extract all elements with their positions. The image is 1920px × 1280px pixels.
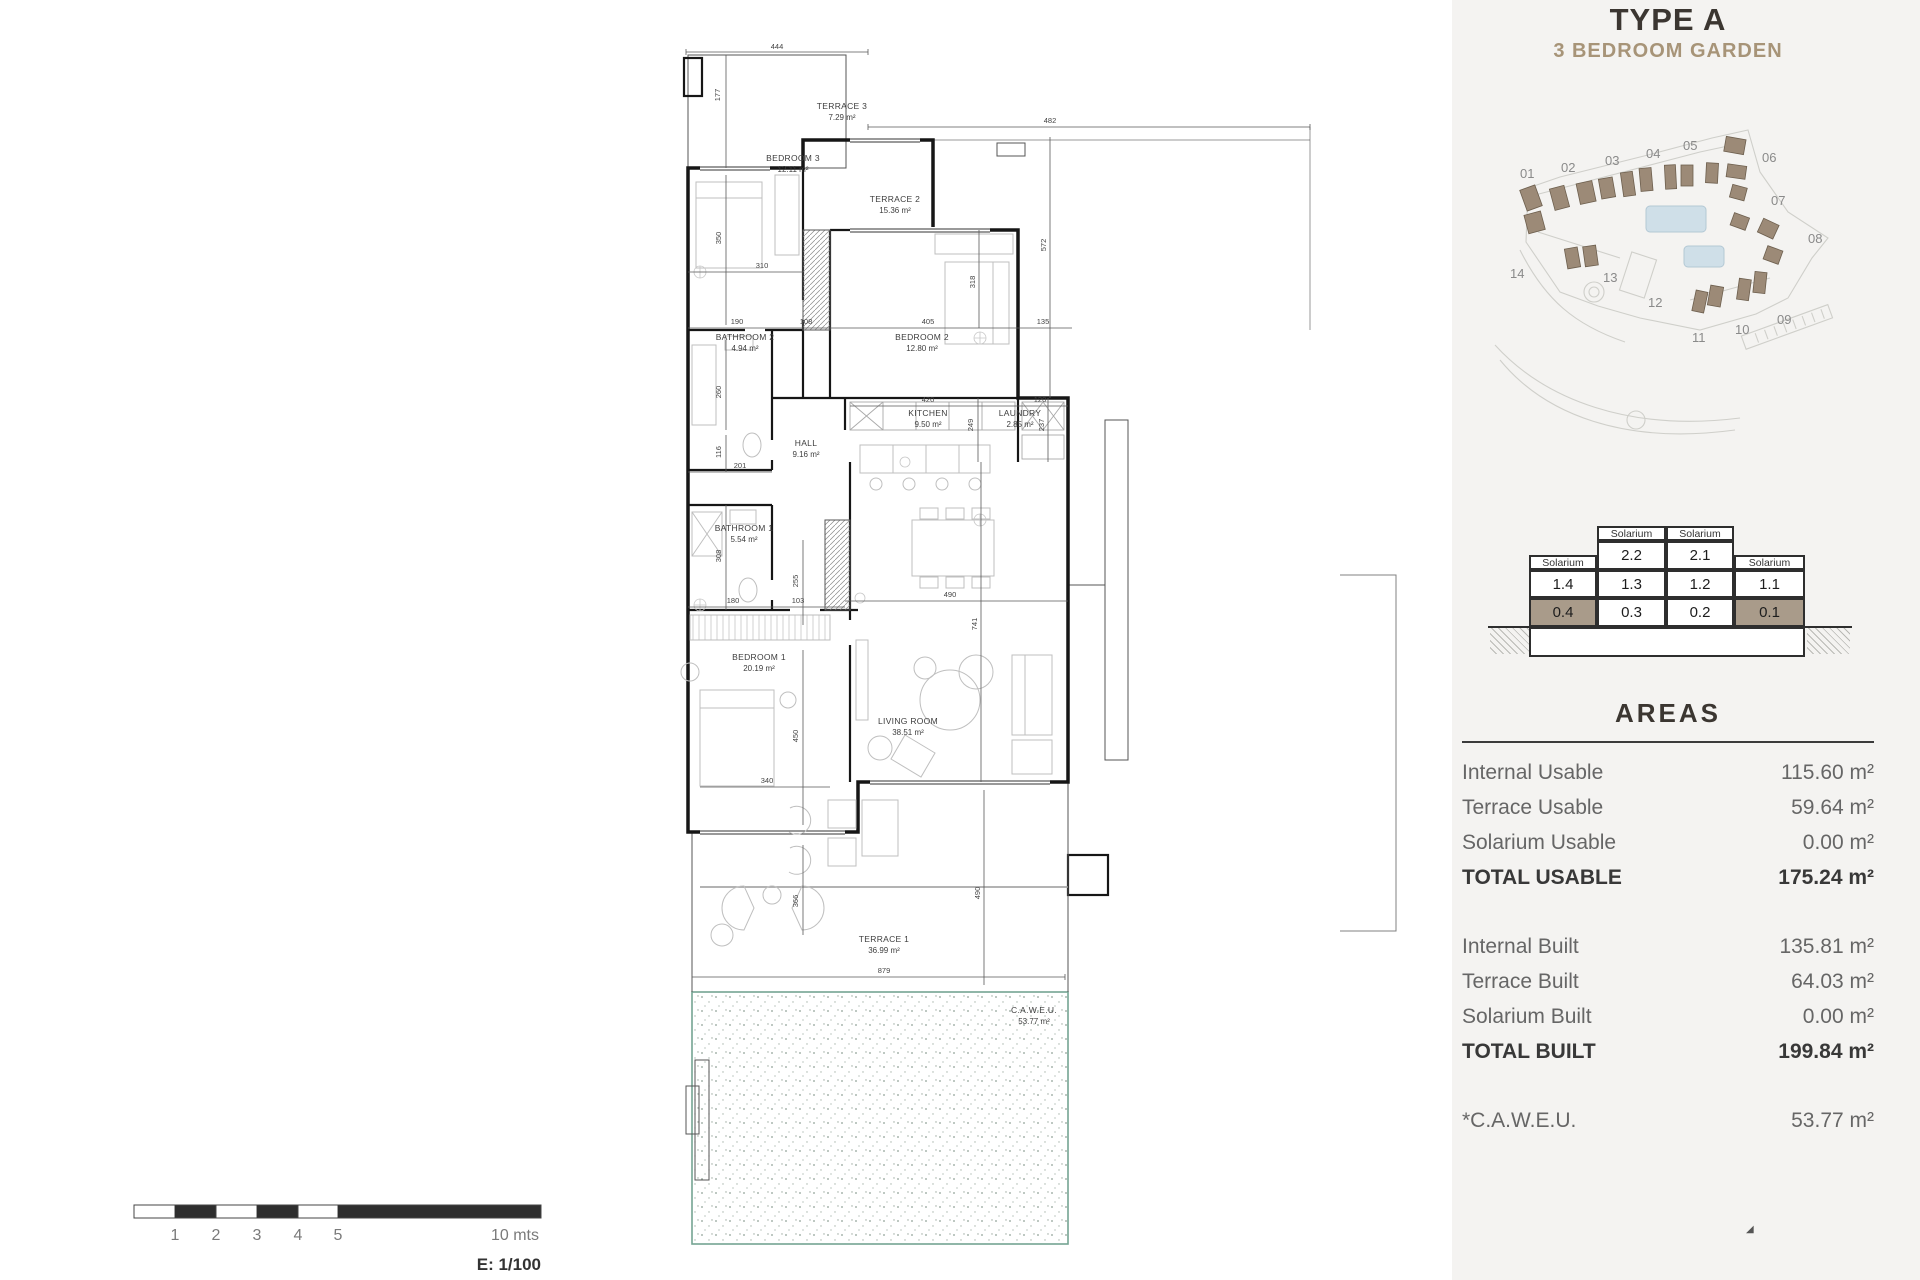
dim-350: 350 [714, 232, 723, 245]
scale-bar: 1 2 3 4 5 10 mts E: 1/100 [120, 1195, 560, 1280]
matrix-solarium-label: Solarium [1734, 555, 1805, 570]
matrix-unit-0-1-highlighted: 0.1 [1734, 598, 1805, 627]
site-number-01: 01 [1520, 166, 1534, 181]
garden-area [692, 992, 1068, 1244]
scale-bar-graphic [134, 1205, 541, 1218]
area-label: *C.A.W.E.U. [1462, 1109, 1576, 1133]
right-side-elements [1068, 420, 1396, 931]
site-number-11: 11 [1692, 330, 1706, 345]
areas-row: Internal Usable 115.60 m² [1462, 761, 1874, 785]
area-label: Terrace Usable [1462, 796, 1603, 820]
site-number-06: 06 [1762, 150, 1776, 165]
dim-255: 255 [791, 575, 800, 588]
corner-mark: ◢ [1746, 1224, 1754, 1235]
floorplan-page: 444 177 482 572 310 350 190 108 405 135 … [0, 0, 1920, 1280]
dim-572: 572 [1039, 239, 1048, 252]
area-label: Terrace Built [1462, 970, 1579, 994]
scale-end-label: 10 mts [491, 1227, 539, 1244]
site-number-09: 09 [1777, 312, 1791, 327]
site-number-14: 14 [1510, 266, 1524, 281]
room-living-name: LIVING ROOM [878, 716, 938, 726]
site-number-13: 13 [1603, 270, 1617, 285]
room-bathroom2-area: 4.94 m² [731, 344, 758, 353]
room-hall-name: HALL [795, 438, 817, 448]
scale-tick-2: 2 [212, 1227, 221, 1244]
areas-row-total-usable: TOTAL USABLE 175.24 m² [1462, 866, 1874, 890]
dim-741: 741 [970, 618, 979, 631]
room-bedroom2-name: BEDROOM 2 [895, 332, 949, 342]
areas-row-total-built: TOTAL BUILT 199.84 m² [1462, 1040, 1874, 1064]
areas-row: Terrace Usable 59.64 m² [1462, 796, 1874, 820]
dim-177: 177 [713, 89, 722, 102]
room-bedroom3-name: BEDROOM 3 [766, 153, 820, 163]
dimension-labels: 444 177 482 572 310 350 190 108 405 135 … [713, 42, 1056, 975]
areas-row: Terrace Built 64.03 m² [1462, 970, 1874, 994]
room-caweu-area: 53.77 m² [1018, 1017, 1050, 1026]
dim-135: 135 [1037, 317, 1050, 326]
dim-190: 190 [731, 317, 744, 326]
matrix-unit-1-3: 1.3 [1597, 570, 1666, 598]
area-label: Solarium Built [1462, 1005, 1592, 1029]
matrix-unit-0-4-highlighted: 0.4 [1529, 598, 1597, 627]
ground-hatch-left [1490, 628, 1529, 654]
room-laundry-area: 2.85 m² [1006, 420, 1033, 429]
dim-340: 340 [761, 776, 774, 785]
windows [700, 137, 1050, 835]
dim-116: 116 [714, 446, 723, 458]
site-number-12: 12 [1648, 295, 1662, 310]
room-bathroom2-name: BATHROOM 2 [716, 332, 775, 342]
dim-108: 108 [800, 317, 813, 326]
dim-310: 310 [756, 261, 769, 270]
dimension-lines [686, 49, 1310, 985]
dim-120: 120 [1034, 395, 1047, 404]
area-label: TOTAL USABLE [1462, 866, 1622, 890]
areas-row-caweu: *C.A.W.E.U. 53.77 m² [1462, 1109, 1874, 1133]
site-number-10: 10 [1735, 322, 1749, 337]
matrix-solarium-label: Solarium [1529, 555, 1597, 570]
terrace3-boundary [684, 55, 846, 168]
area-value: 53.77 m² [1791, 1109, 1874, 1133]
room-bedroom1-name: BEDROOM 1 [732, 652, 786, 662]
room-terrace2-name: TERRACE 2 [870, 194, 920, 204]
dim-237: 237 [1037, 419, 1046, 432]
room-bedroom3-area: 12.11 m² [778, 165, 809, 174]
area-value: 175.24 m² [1778, 866, 1874, 890]
area-label: Internal Usable [1462, 761, 1603, 785]
site-number-08: 08 [1808, 231, 1822, 246]
site-number-07: 07 [1771, 193, 1785, 208]
room-terrace1-name: TERRACE 1 [859, 934, 909, 944]
area-value: 199.84 m² [1778, 1040, 1874, 1064]
matrix-unit-0-3: 0.3 [1597, 598, 1666, 627]
dim-444: 444 [771, 42, 784, 51]
area-label: TOTAL BUILT [1462, 1040, 1596, 1064]
scale-tick-5: 5 [334, 1227, 343, 1244]
areas-divider [1462, 741, 1874, 743]
matrix-basement [1529, 627, 1805, 657]
room-laundry-name: LAUNDRY [999, 408, 1042, 418]
dim-201: 201 [734, 461, 747, 470]
area-value: 135.81 m² [1779, 935, 1874, 959]
dim-420: 420 [922, 395, 935, 404]
outer-walls [688, 140, 1068, 832]
page-subtitle: 3 BEDROOM GARDEN [1462, 40, 1874, 63]
area-value: 115.60 m² [1781, 761, 1874, 785]
site-number-04: 04 [1646, 146, 1660, 161]
dim-180: 180 [727, 596, 740, 605]
area-value: 0.00 m² [1803, 831, 1874, 855]
site-number-03: 03 [1605, 153, 1619, 168]
room-bedroom1-area: 20.19 m² [743, 664, 775, 673]
areas-row: Internal Built 135.81 m² [1462, 935, 1874, 959]
dim-260: 260 [714, 386, 723, 399]
room-bathroom1-area: 5.54 m² [730, 535, 757, 544]
dim-490-v: 490 [973, 887, 982, 900]
room-terrace1-area: 36.99 m² [868, 946, 900, 955]
room-bedroom2-area: 12.80 m² [906, 344, 938, 353]
room-terrace3-name: TERRACE 3 [817, 101, 867, 111]
dim-308: 308 [714, 550, 723, 563]
site-number-02: 02 [1561, 160, 1575, 175]
scale-tick-1: 1 [171, 1227, 180, 1244]
area-value: 64.03 m² [1791, 970, 1874, 994]
matrix-unit-1-2: 1.2 [1666, 570, 1734, 598]
matrix-unit-2-1: 2.1 [1666, 541, 1734, 570]
area-label: Solarium Usable [1462, 831, 1616, 855]
matrix-solarium-label: Solarium [1597, 526, 1666, 541]
matrix-unit-1-1: 1.1 [1734, 570, 1805, 598]
area-label: Internal Built [1462, 935, 1579, 959]
dim-249: 249 [966, 419, 975, 432]
room-living-area: 38.51 m² [892, 728, 924, 737]
matrix-unit-1-4: 1.4 [1529, 570, 1597, 598]
areas-row: Solarium Usable 0.00 m² [1462, 831, 1874, 855]
dim-318: 318 [968, 276, 977, 289]
site-outline [1495, 130, 1833, 434]
ground-hatch-right [1807, 628, 1850, 654]
areas-row: Solarium Built 0.00 m² [1462, 1005, 1874, 1029]
louvre-strips [690, 230, 850, 640]
room-bathroom1-name: BATHROOM 1 [715, 523, 774, 533]
matrix-solarium-label: Solarium [1666, 526, 1734, 541]
dim-482: 482 [1044, 116, 1057, 125]
room-terrace2-area: 15.36 m² [879, 206, 911, 215]
site-number-05: 05 [1683, 138, 1697, 153]
areas-section: AREAS Internal Usable 115.60 m² Terrace … [1462, 698, 1874, 1144]
dim-405: 405 [922, 317, 935, 326]
area-value: 0.00 m² [1803, 1005, 1874, 1029]
room-kitchen-name: KITCHEN [908, 408, 947, 418]
room-terrace3-area: 7.29 m² [828, 113, 855, 122]
room-kitchen-area: 9.50 m² [914, 420, 941, 429]
dim-879: 879 [878, 966, 891, 975]
room-caweu-name: C.A.W.E.U. [1011, 1005, 1057, 1015]
areas-heading: AREAS [1462, 698, 1874, 729]
site-plan: 01 02 03 04 05 06 07 08 09 10 11 12 13 1… [1490, 115, 1900, 485]
dim-450: 450 [791, 730, 800, 743]
room-hall-area: 9.16 m² [792, 450, 819, 459]
area-value: 59.64 m² [1791, 796, 1874, 820]
dim-490-h: 490 [944, 590, 957, 599]
matrix-unit-0-2: 0.2 [1666, 598, 1734, 627]
floor-plan: 444 177 482 572 310 350 190 108 405 135 … [0, 0, 1452, 1280]
dim-366: 366 [791, 895, 800, 908]
page-title: TYPE A [1462, 2, 1874, 38]
scale-tick-3: 3 [253, 1227, 262, 1244]
dim-103: 103 [792, 596, 805, 605]
scale-tick-4: 4 [294, 1227, 303, 1244]
scale-ratio-label: E: 1/100 [477, 1255, 541, 1274]
matrix-unit-2-2: 2.2 [1597, 541, 1666, 570]
